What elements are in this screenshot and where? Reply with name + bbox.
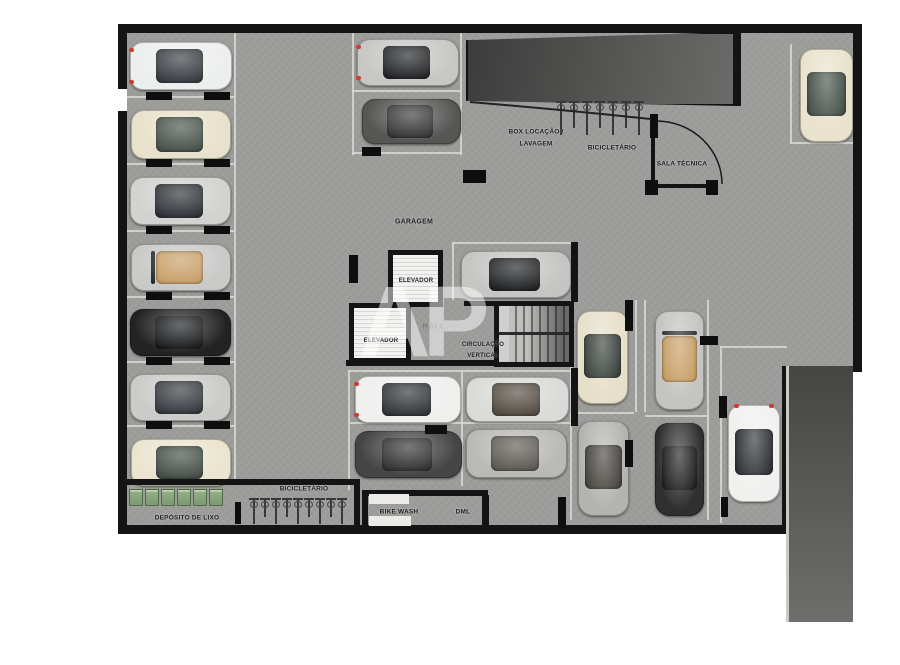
parking-line [635, 300, 637, 412]
bikewash-bench [369, 516, 411, 526]
wall-segment [571, 242, 578, 302]
car-roof-glass [492, 383, 540, 415]
tail-light [769, 404, 774, 408]
car-roof-glass [156, 251, 203, 285]
parking-line [790, 142, 854, 144]
room-label-garagem: GARAGEM [395, 219, 433, 226]
tail-light [129, 48, 134, 52]
bike-rack-icon [625, 101, 627, 128]
parking-line [352, 30, 354, 155]
pillar [721, 497, 728, 517]
car-roof-glass [491, 436, 538, 471]
pillar [204, 357, 230, 365]
car-roof-glass [662, 336, 697, 383]
pillar [700, 336, 718, 345]
car-roof-glass [584, 334, 621, 378]
windshield-bar [662, 331, 697, 335]
bike-rack-icon [330, 498, 332, 517]
wall-segment [853, 24, 862, 372]
parking-line [707, 300, 709, 520]
car-top-view [577, 311, 628, 404]
pillar [146, 357, 172, 365]
bike-rack-icon [275, 498, 277, 524]
wall-segment [653, 184, 711, 188]
pillar [146, 226, 172, 234]
parking-line [644, 300, 646, 412]
pillar [719, 396, 727, 418]
parking-line [720, 346, 787, 348]
car-roof-glass [807, 72, 845, 116]
trash-bin-icon [193, 489, 207, 506]
car-roof-glass [382, 438, 432, 472]
wall-segment [122, 479, 358, 485]
room-label-bicicletario-top: BICICLETÁRIO [588, 145, 637, 152]
bike-rack-icon [341, 498, 343, 524]
bikewash-bench [369, 494, 409, 504]
room-label-box-locacao-line2: LAVAGEM [520, 141, 553, 148]
wall-segment [354, 479, 360, 530]
pillar [235, 502, 241, 524]
parking-line [572, 412, 634, 414]
bike-rack-icon [586, 101, 588, 135]
car-roof-glass [155, 316, 202, 350]
pillar [625, 440, 633, 467]
bike-rack-icon [599, 101, 601, 128]
car-top-view [130, 374, 231, 421]
car-top-view [655, 423, 704, 516]
entry-ramp-area [786, 366, 853, 622]
pillar [146, 421, 172, 429]
pillar [204, 92, 230, 100]
room-label-dml: DML [456, 509, 471, 516]
pillar [558, 497, 566, 528]
bike-rack-icon [297, 498, 299, 524]
pillar [645, 180, 658, 195]
parking-line [790, 44, 792, 144]
car-roof-glass [155, 184, 202, 219]
room-label-box-locacao-line1: BOX LOCAÇÃO / [509, 129, 564, 136]
trash-bin-icon [209, 489, 223, 506]
car-top-view [362, 99, 461, 144]
wall-segment [482, 495, 489, 530]
car-roof-glass [382, 383, 432, 417]
tail-light [356, 45, 361, 49]
wall-segment [118, 24, 862, 33]
wall-opening [117, 89, 127, 111]
pillar [362, 147, 381, 156]
parking-line [645, 415, 707, 417]
car-roof-glass [387, 105, 434, 137]
trash-bin-icon [129, 489, 143, 506]
parking-line [234, 30, 236, 483]
wall-segment [118, 525, 786, 534]
windshield-bar [151, 251, 155, 285]
pillar [204, 292, 230, 300]
bike-rack-icon [264, 498, 266, 517]
room-label-bike-wash: BIKE WASH [380, 509, 419, 516]
room-label-sala-tecnica: SALA TÉCNICA [657, 161, 708, 168]
car-top-view [131, 110, 231, 159]
car-roof-glass [156, 49, 204, 84]
pillar [204, 159, 230, 167]
bike-rack-icon [573, 101, 575, 128]
parking-line [461, 372, 463, 486]
car-roof-glass [662, 446, 697, 490]
bike-rack-icon [308, 498, 310, 517]
trash-bin-icon [145, 489, 159, 506]
car-top-view [355, 376, 461, 423]
bike-rack-icon [253, 498, 255, 524]
bike-rack-icon [286, 498, 288, 517]
wall-segment [571, 368, 578, 426]
wall-segment [733, 30, 741, 106]
room-label-bicicletario-bottom: BICICLETÁRIO [280, 486, 329, 493]
car-top-view [130, 309, 231, 356]
room-label-deposito-lixo: DEPÓSITO DE LIXO [155, 515, 219, 522]
bike-rack-icon [638, 101, 640, 135]
car-roof-glass [156, 117, 203, 152]
trash-bin-icon [161, 489, 175, 506]
pillar [425, 425, 447, 434]
pillar [625, 300, 633, 331]
bike-rack-icon [612, 101, 614, 135]
watermark-logo: AP [322, 266, 518, 378]
floorplan-canvas: GARAGEM ELEVADOR ELEVADOR HALL CIRCULAÇÃ… [0, 0, 900, 665]
car-top-view [357, 39, 459, 86]
parking-line [348, 370, 350, 490]
car-top-view [130, 177, 231, 225]
parking-line [352, 90, 462, 92]
car-top-view [728, 405, 780, 502]
wall-segment [362, 490, 368, 530]
tail-light [734, 404, 739, 408]
car-roof-glass [585, 445, 622, 490]
car-top-view [800, 49, 853, 142]
car-top-view [131, 244, 231, 291]
car-roof-glass [383, 46, 431, 80]
pillar [146, 292, 172, 300]
tail-light [354, 382, 359, 386]
car-top-view [355, 431, 462, 478]
tail-light [354, 413, 359, 417]
trash-bin-icon [177, 489, 191, 506]
pillar [146, 159, 172, 167]
pillar [463, 170, 486, 183]
upper-ramp-area [466, 32, 737, 106]
pillar [204, 421, 230, 429]
car-roof-glass [156, 446, 203, 480]
parking-line [460, 30, 462, 155]
tail-light [129, 80, 134, 84]
bike-rack-icon [319, 498, 321, 524]
pillar [706, 180, 718, 195]
car-top-view [466, 377, 569, 422]
parking-line [452, 242, 574, 244]
car-top-view [130, 42, 232, 90]
car-top-view [466, 429, 567, 478]
pillar [204, 226, 230, 234]
car-top-view [655, 311, 704, 410]
tail-light [356, 76, 361, 80]
car-roof-glass [735, 429, 772, 475]
pillar [146, 92, 172, 100]
car-top-view [578, 421, 629, 516]
car-roof-glass [155, 381, 202, 415]
pillar [650, 114, 658, 138]
